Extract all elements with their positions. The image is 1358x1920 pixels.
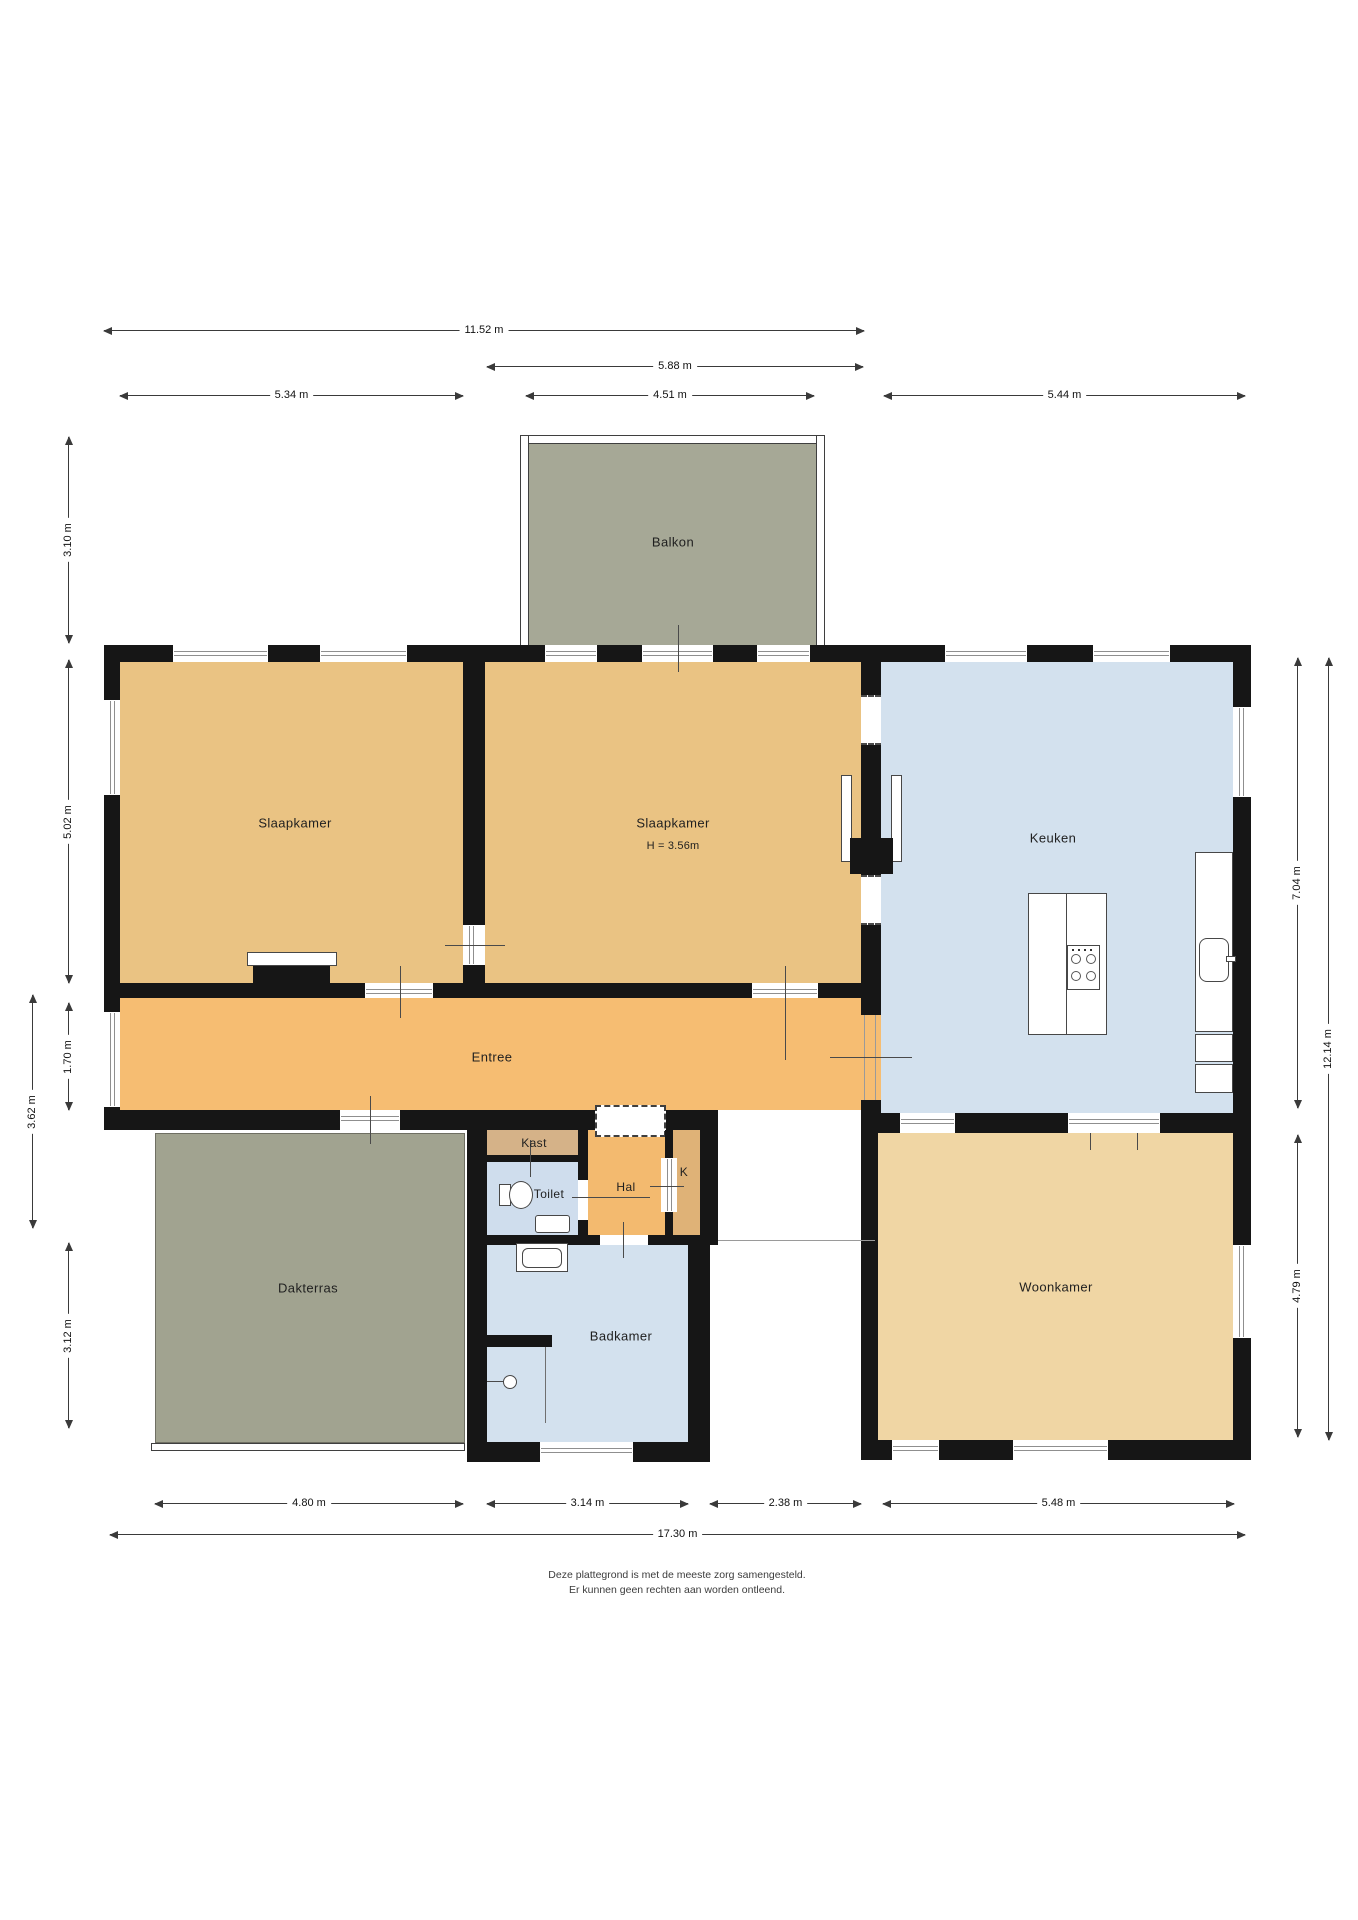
- door-swing-line: [445, 945, 505, 946]
- arrowhead: [1226, 1500, 1235, 1508]
- door-swing-line: [650, 1186, 684, 1187]
- roof-edge-line: [718, 1240, 875, 1241]
- wall-segment: [688, 1245, 710, 1462]
- wall-segment: [648, 1235, 718, 1245]
- open-passage-dashed: [861, 695, 881, 745]
- dimension-7-04: 7.04 m: [1297, 658, 1298, 1108]
- label-entree: Entree: [472, 1050, 513, 1065]
- window: [320, 645, 407, 662]
- kitchen-faucet: [1226, 956, 1236, 962]
- label-badkamer: Badkamer: [590, 1329, 652, 1344]
- window: [945, 645, 1027, 662]
- burner: [1086, 971, 1096, 981]
- wall-kast-bottom: [487, 1155, 578, 1162]
- burner: [1071, 954, 1081, 964]
- wall-segment: [665, 1212, 673, 1235]
- door-opening: [578, 1180, 588, 1220]
- wall-segment: [400, 1110, 598, 1130]
- wall-segment: [861, 1133, 878, 1440]
- dimension-3-10: 3.10 m: [68, 437, 69, 643]
- window: [1013, 1440, 1108, 1460]
- dimension-5-34: 5.34 m: [120, 395, 463, 396]
- arrowhead: [882, 1500, 891, 1508]
- dimension-label: 5.44 m: [1043, 389, 1087, 401]
- shower-wall: [475, 1335, 552, 1347]
- wall-segment: [955, 1113, 1068, 1133]
- arrowhead: [1294, 1100, 1302, 1109]
- arrowhead: [29, 994, 37, 1003]
- window: [1233, 707, 1251, 797]
- wall-segment: [467, 1130, 487, 1462]
- dimension-2-38: 2.38 m: [710, 1503, 861, 1504]
- door-opening: [365, 983, 433, 998]
- window: [545, 645, 597, 662]
- dimension-label: 17.30 m: [653, 1528, 703, 1540]
- dimension-label: 2.38 m: [764, 1497, 808, 1509]
- dimension-17-30: 17.30 m: [110, 1534, 1245, 1535]
- window: [1068, 1113, 1160, 1133]
- arrowhead: [29, 1220, 37, 1229]
- shower-head: [503, 1375, 517, 1389]
- wall-segment: [861, 1440, 892, 1460]
- dimension-3-14: 3.14 m: [487, 1503, 688, 1504]
- wall-segment: [861, 1113, 900, 1133]
- dimension-label: 5.48 m: [1037, 1497, 1081, 1509]
- label-toilet: Toilet: [534, 1187, 564, 1201]
- door-swing-line: [678, 625, 679, 672]
- dimension-label: 5.34 m: [270, 389, 314, 401]
- arrowhead: [65, 635, 73, 644]
- dimension-label: 7.04 m: [1291, 861, 1303, 905]
- dimension-12-14: 12.14 m: [1328, 658, 1329, 1440]
- label-slaapkamer-1: Slaapkamer: [258, 816, 331, 831]
- disclaimer: Deze plattegrond is met de meeste zorg s…: [377, 1568, 977, 1598]
- arrowhead: [1294, 657, 1302, 666]
- arrowhead: [455, 392, 464, 400]
- wall-segment: [467, 1442, 540, 1462]
- arrowhead: [65, 1242, 73, 1251]
- dimension-label: 3.62 m: [26, 1090, 38, 1134]
- arrowhead: [65, 1420, 73, 1429]
- arrowhead: [103, 327, 112, 335]
- arrowhead: [65, 659, 73, 668]
- room-keuken: [881, 662, 1233, 1113]
- arrowhead: [65, 1002, 73, 1011]
- dimension-3-62: 3.62 m: [32, 995, 33, 1228]
- door-swing-line: [623, 1222, 624, 1258]
- label-slaapkamer-2: Slaapkamer: [636, 816, 709, 831]
- wall-segment: [578, 1130, 588, 1180]
- arrowhead: [109, 1531, 118, 1539]
- wall-segment: [578, 1220, 588, 1235]
- wall-segment: [1027, 645, 1093, 662]
- wall-segment: [597, 645, 642, 662]
- dimension-4-79: 4.79 m: [1297, 1135, 1298, 1437]
- dakterras-edge: [151, 1443, 465, 1451]
- label-kast: Kast: [521, 1136, 547, 1150]
- dimension-5-88: 5.88 m: [487, 366, 863, 367]
- kitchen-sink: [1199, 938, 1229, 982]
- toilet-bowl: [509, 1181, 533, 1209]
- wall-segment: [104, 795, 120, 1012]
- door-opening: [600, 1235, 648, 1245]
- arrowhead: [455, 1500, 464, 1508]
- window: [1233, 1245, 1251, 1338]
- wall-segment: [713, 645, 757, 662]
- dimension-5-02: 5.02 m: [68, 660, 69, 983]
- arrowhead: [856, 327, 865, 335]
- wall-segment: [861, 1100, 881, 1113]
- dimension-label: 12.14 m: [1322, 1024, 1334, 1074]
- floor-plan: Balkon Slaapkamer Slaapkamer H = 3.56m K…: [0, 0, 1358, 1920]
- dimension-1-70: 1.70 m: [68, 1003, 69, 1110]
- wall-segment: [1233, 1338, 1251, 1440]
- dimension-label: 4.51 m: [648, 389, 692, 401]
- arrowhead: [525, 392, 534, 400]
- counter-unit: [1195, 1064, 1233, 1093]
- dimension-5-48: 5.48 m: [883, 1503, 1234, 1504]
- dimension-label: 5.88 m: [653, 360, 697, 372]
- arrowhead: [806, 392, 815, 400]
- balkon-rail-right: [816, 435, 825, 648]
- dimension-11-52: 11.52 m: [104, 330, 864, 331]
- cabinet: [247, 952, 337, 966]
- entry-door-dashed: [595, 1105, 666, 1137]
- arrowhead: [1237, 1531, 1246, 1539]
- label-woonkamer: Woonkamer: [1019, 1280, 1092, 1295]
- door-swing-line: [785, 966, 786, 1060]
- wall-segment: [433, 983, 752, 998]
- label-k: K: [680, 1165, 688, 1179]
- wall-segment: [1108, 1440, 1251, 1460]
- wall-segment: [463, 645, 485, 925]
- wc-sink: [535, 1215, 570, 1233]
- chimney-block: [850, 838, 893, 874]
- wall-segment: [700, 1130, 718, 1245]
- arrowhead: [65, 436, 73, 445]
- arrowhead: [680, 1500, 689, 1508]
- disclaimer-line-2: Er kunnen geen rechten aan worden ontlee…: [377, 1583, 977, 1598]
- dimension-5-44: 5.44 m: [884, 395, 1245, 396]
- wall-segment: [268, 645, 320, 662]
- bathroom-sink-basin: [522, 1248, 562, 1268]
- arrowhead: [119, 392, 128, 400]
- disclaimer-line-1: Deze plattegrond is met de meeste zorg s…: [377, 1568, 977, 1583]
- dimension-4-80: 4.80 m: [155, 1503, 463, 1504]
- label-slaapkamer-2-height: H = 3.56m: [647, 840, 700, 852]
- door-swing-line: [370, 1096, 371, 1144]
- arrowhead: [855, 363, 864, 371]
- dimension-4-51: 4.51 m: [526, 395, 814, 396]
- arrowhead: [486, 1500, 495, 1508]
- wall-segment: [120, 983, 365, 998]
- counter-unit: [1195, 1034, 1233, 1062]
- arrowhead: [853, 1500, 862, 1508]
- wall-segment: [1233, 797, 1251, 1245]
- arrowhead: [1294, 1134, 1302, 1143]
- room-k: [673, 1130, 700, 1235]
- door-swing-line: [572, 1197, 650, 1198]
- window: [104, 700, 120, 795]
- door-swing-line: [1137, 1133, 1138, 1150]
- arrowhead: [1325, 657, 1333, 666]
- label-balkon: Balkon: [652, 535, 694, 550]
- arrowhead: [486, 363, 495, 371]
- arrowhead: [709, 1500, 718, 1508]
- cooktop-controls: [1072, 949, 1094, 951]
- balkon-rail-top: [520, 435, 825, 444]
- window: [892, 1440, 939, 1460]
- dimension-label: 4.79 m: [1291, 1264, 1303, 1308]
- arrowhead: [1294, 1429, 1302, 1438]
- wall-segment: [633, 1442, 710, 1462]
- wall-segment: [666, 1110, 718, 1130]
- wall-segment: [665, 1130, 673, 1158]
- window: [1093, 645, 1170, 662]
- wall-segment: [1233, 645, 1251, 707]
- wall-segment: [104, 1110, 340, 1130]
- window: [104, 1012, 120, 1107]
- wall-segment: [861, 925, 881, 1015]
- wall-segment: [939, 1440, 1013, 1460]
- door-opening: [900, 1113, 955, 1133]
- arrowhead: [65, 975, 73, 984]
- wall-segment: [861, 645, 881, 695]
- door-swing-line: [1090, 1133, 1091, 1150]
- window: [540, 1442, 633, 1462]
- burner: [1086, 954, 1096, 964]
- label-keuken: Keuken: [1030, 831, 1077, 846]
- arrowhead: [1325, 1432, 1333, 1441]
- wall-closet-block: [253, 966, 330, 983]
- door-swing-line: [830, 1057, 912, 1058]
- label-hal: Hal: [616, 1180, 635, 1194]
- balkon-rail-left: [520, 435, 529, 648]
- dimension-label: 3.14 m: [566, 1497, 610, 1509]
- open-passage-dashed: [861, 875, 881, 925]
- dimension-label: 1.70 m: [62, 1035, 74, 1079]
- door-swing-line: [400, 966, 401, 1018]
- arrowhead: [883, 392, 892, 400]
- cooktop: [1067, 945, 1100, 990]
- window: [757, 645, 810, 662]
- wall-segment: [104, 645, 120, 700]
- arrowhead: [65, 1102, 73, 1111]
- dimension-label: 5.02 m: [62, 800, 74, 844]
- arrowhead: [1237, 392, 1246, 400]
- dimension-3-12: 3.12 m: [68, 1243, 69, 1428]
- dimension-label: 3.10 m: [62, 518, 74, 562]
- dimension-label: 4.80 m: [287, 1497, 331, 1509]
- wall-segment: [1160, 1113, 1251, 1133]
- label-dakterras: Dakterras: [278, 1281, 338, 1296]
- glazed-door: [661, 1158, 677, 1212]
- window: [173, 645, 268, 662]
- shower-glass: [545, 1347, 546, 1423]
- burner: [1071, 971, 1081, 981]
- arrowhead: [154, 1500, 163, 1508]
- dimension-label: 3.12 m: [62, 1314, 74, 1358]
- wall-segment: [818, 983, 861, 998]
- dimension-label: 11.52 m: [460, 324, 509, 336]
